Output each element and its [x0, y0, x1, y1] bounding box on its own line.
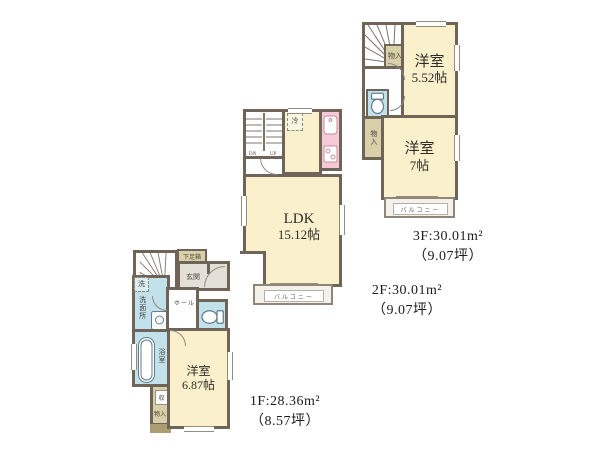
balcony-2f-rail: バルコニー	[264, 290, 324, 302]
hall-1f: ホール	[166, 287, 199, 334]
closet-3f-left-label: 物入	[369, 130, 377, 146]
closet-3f-top-label: 物入	[388, 53, 402, 61]
balcony-3f: バルコニー	[384, 197, 455, 218]
ldk-2f-name: LDK	[284, 211, 315, 228]
room-3f-bedroom2-size: 7帖	[410, 159, 430, 174]
room-3f-bedroom2-name: 洋室	[404, 141, 434, 158]
footprint-notch-2f	[240, 251, 266, 287]
toilet-icon	[368, 91, 387, 117]
room-3f-bedroom1: 洋室 5.52帖	[401, 22, 458, 118]
stairs-icon	[246, 113, 282, 151]
washroom-label: 洗面所	[138, 296, 146, 320]
ldk-2f-size: 15.12帖	[278, 228, 320, 243]
bathroom-1f: 浴室	[132, 329, 170, 387]
caption-2f-tsubo: （9.07坪）	[348, 301, 466, 321]
caption-2f-area: 2F:30.01m²	[348, 281, 466, 301]
caption-3f-tsubo: （9.07坪）	[390, 247, 506, 267]
room-3f-bedroom1-name: 洋室	[414, 54, 444, 71]
hall-label: ホール	[174, 298, 195, 307]
floorplan-canvas: 物入 洋室 5.52帖 物入 洋室 7帖 バルコニー 3F:30.01m² （9…	[0, 0, 600, 450]
caption-1f: 1F:28.36m² （8.57坪）	[226, 392, 344, 433]
caption-3f-area: 3F:30.01m²	[390, 227, 506, 247]
shoe-cabinet-label: 下足箱	[183, 252, 201, 261]
caption-1f-area: 1F:28.36m²	[226, 392, 344, 412]
window	[416, 21, 446, 27]
room-1f-bedroom-size: 6.87帖	[182, 379, 215, 393]
toilet-icon	[199, 307, 225, 327]
washing-machine-label: 洗	[138, 281, 145, 289]
washing-machine-space-1f: 洗	[134, 277, 149, 292]
closet-1f-upper-label: 収	[158, 393, 164, 402]
window	[131, 344, 137, 370]
balcony-2f: バルコニー	[253, 284, 333, 305]
stairs-2f: DN UP	[243, 109, 285, 159]
refrigerator-label: 冷	[292, 118, 299, 126]
caption-2f: 2F:30.01m² （9.07坪）	[348, 281, 466, 322]
window	[184, 426, 214, 432]
entrance-label: 玄関	[186, 274, 200, 282]
window	[288, 108, 312, 114]
window	[227, 352, 233, 380]
kitchen-sink-stove-icon	[322, 112, 339, 168]
caption-3f: 3F:30.01m² （9.07坪）	[390, 227, 506, 268]
room-3f-bedroom2: 洋室 7帖	[381, 115, 458, 200]
caption-1f-tsubo: （8.57坪）	[226, 412, 344, 432]
balcony-3f-label: バルコニー	[401, 205, 441, 214]
bathroom-label: 浴室	[157, 348, 165, 364]
bathtub-icon	[138, 337, 155, 383]
ldk-2f-labels: LDK 15.12帖	[264, 205, 334, 249]
room-1f-bedroom-name: 洋室	[186, 365, 210, 379]
window	[339, 205, 345, 235]
window	[454, 135, 460, 161]
window	[241, 196, 247, 226]
room-3f-bedroom1-size: 5.52帖	[412, 71, 448, 86]
refrigerator-space-2f: 冷	[287, 113, 303, 131]
balcony-3f-rail: バルコニー	[393, 203, 448, 215]
window	[454, 45, 460, 71]
kitchen-2f	[319, 109, 342, 171]
closet-1f-lower-label: 物入	[154, 409, 166, 418]
balcony-2f-label: バルコニー	[274, 292, 314, 301]
